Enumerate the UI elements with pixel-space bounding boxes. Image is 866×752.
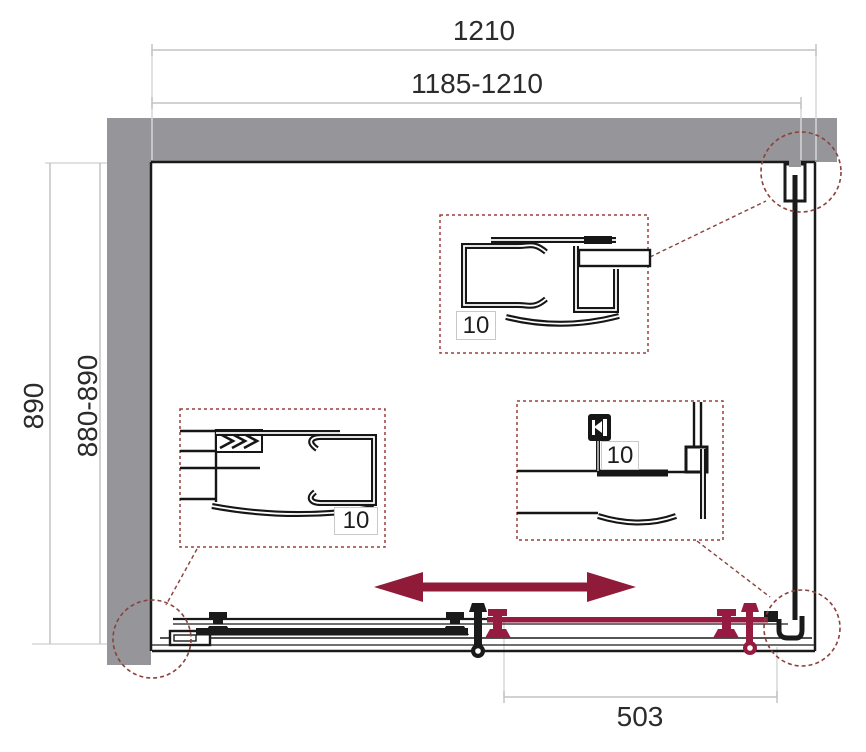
corner-foot-profile — [779, 616, 802, 638]
dim-depth-overall: 890 — [19, 326, 49, 486]
leader-lines — [166, 201, 770, 605]
dim-width-range: 1185-1210 — [152, 69, 802, 99]
left-wall — [107, 118, 151, 665]
detail-left-profile — [180, 429, 374, 514]
technical-drawing: 1210 1185-1210 890 880-890 503 10 10 10 — [0, 0, 866, 752]
sliding-door-red-position — [485, 603, 768, 655]
dim-depth-range: 880-890 — [73, 326, 103, 486]
red-door-handle — [741, 603, 759, 655]
detail-corner-label: 10 — [601, 441, 639, 470]
door-handle — [469, 603, 487, 658]
detail-top-label: 10 — [456, 311, 496, 340]
right-side-panel — [764, 160, 805, 638]
top-wall — [107, 118, 837, 162]
enclosure-outline — [151, 162, 815, 651]
dim-door-section: 503 — [540, 702, 740, 732]
dim-width-overall: 1210 — [152, 16, 816, 46]
glass-panel-section — [579, 250, 650, 266]
callout-circles — [113, 132, 841, 678]
glass-clip — [588, 414, 611, 441]
enclosure-plan-svg — [0, 0, 866, 752]
detail-left-label: 10 — [334, 507, 378, 535]
door-panel — [196, 628, 468, 636]
slide-direction-arrow — [374, 572, 636, 602]
